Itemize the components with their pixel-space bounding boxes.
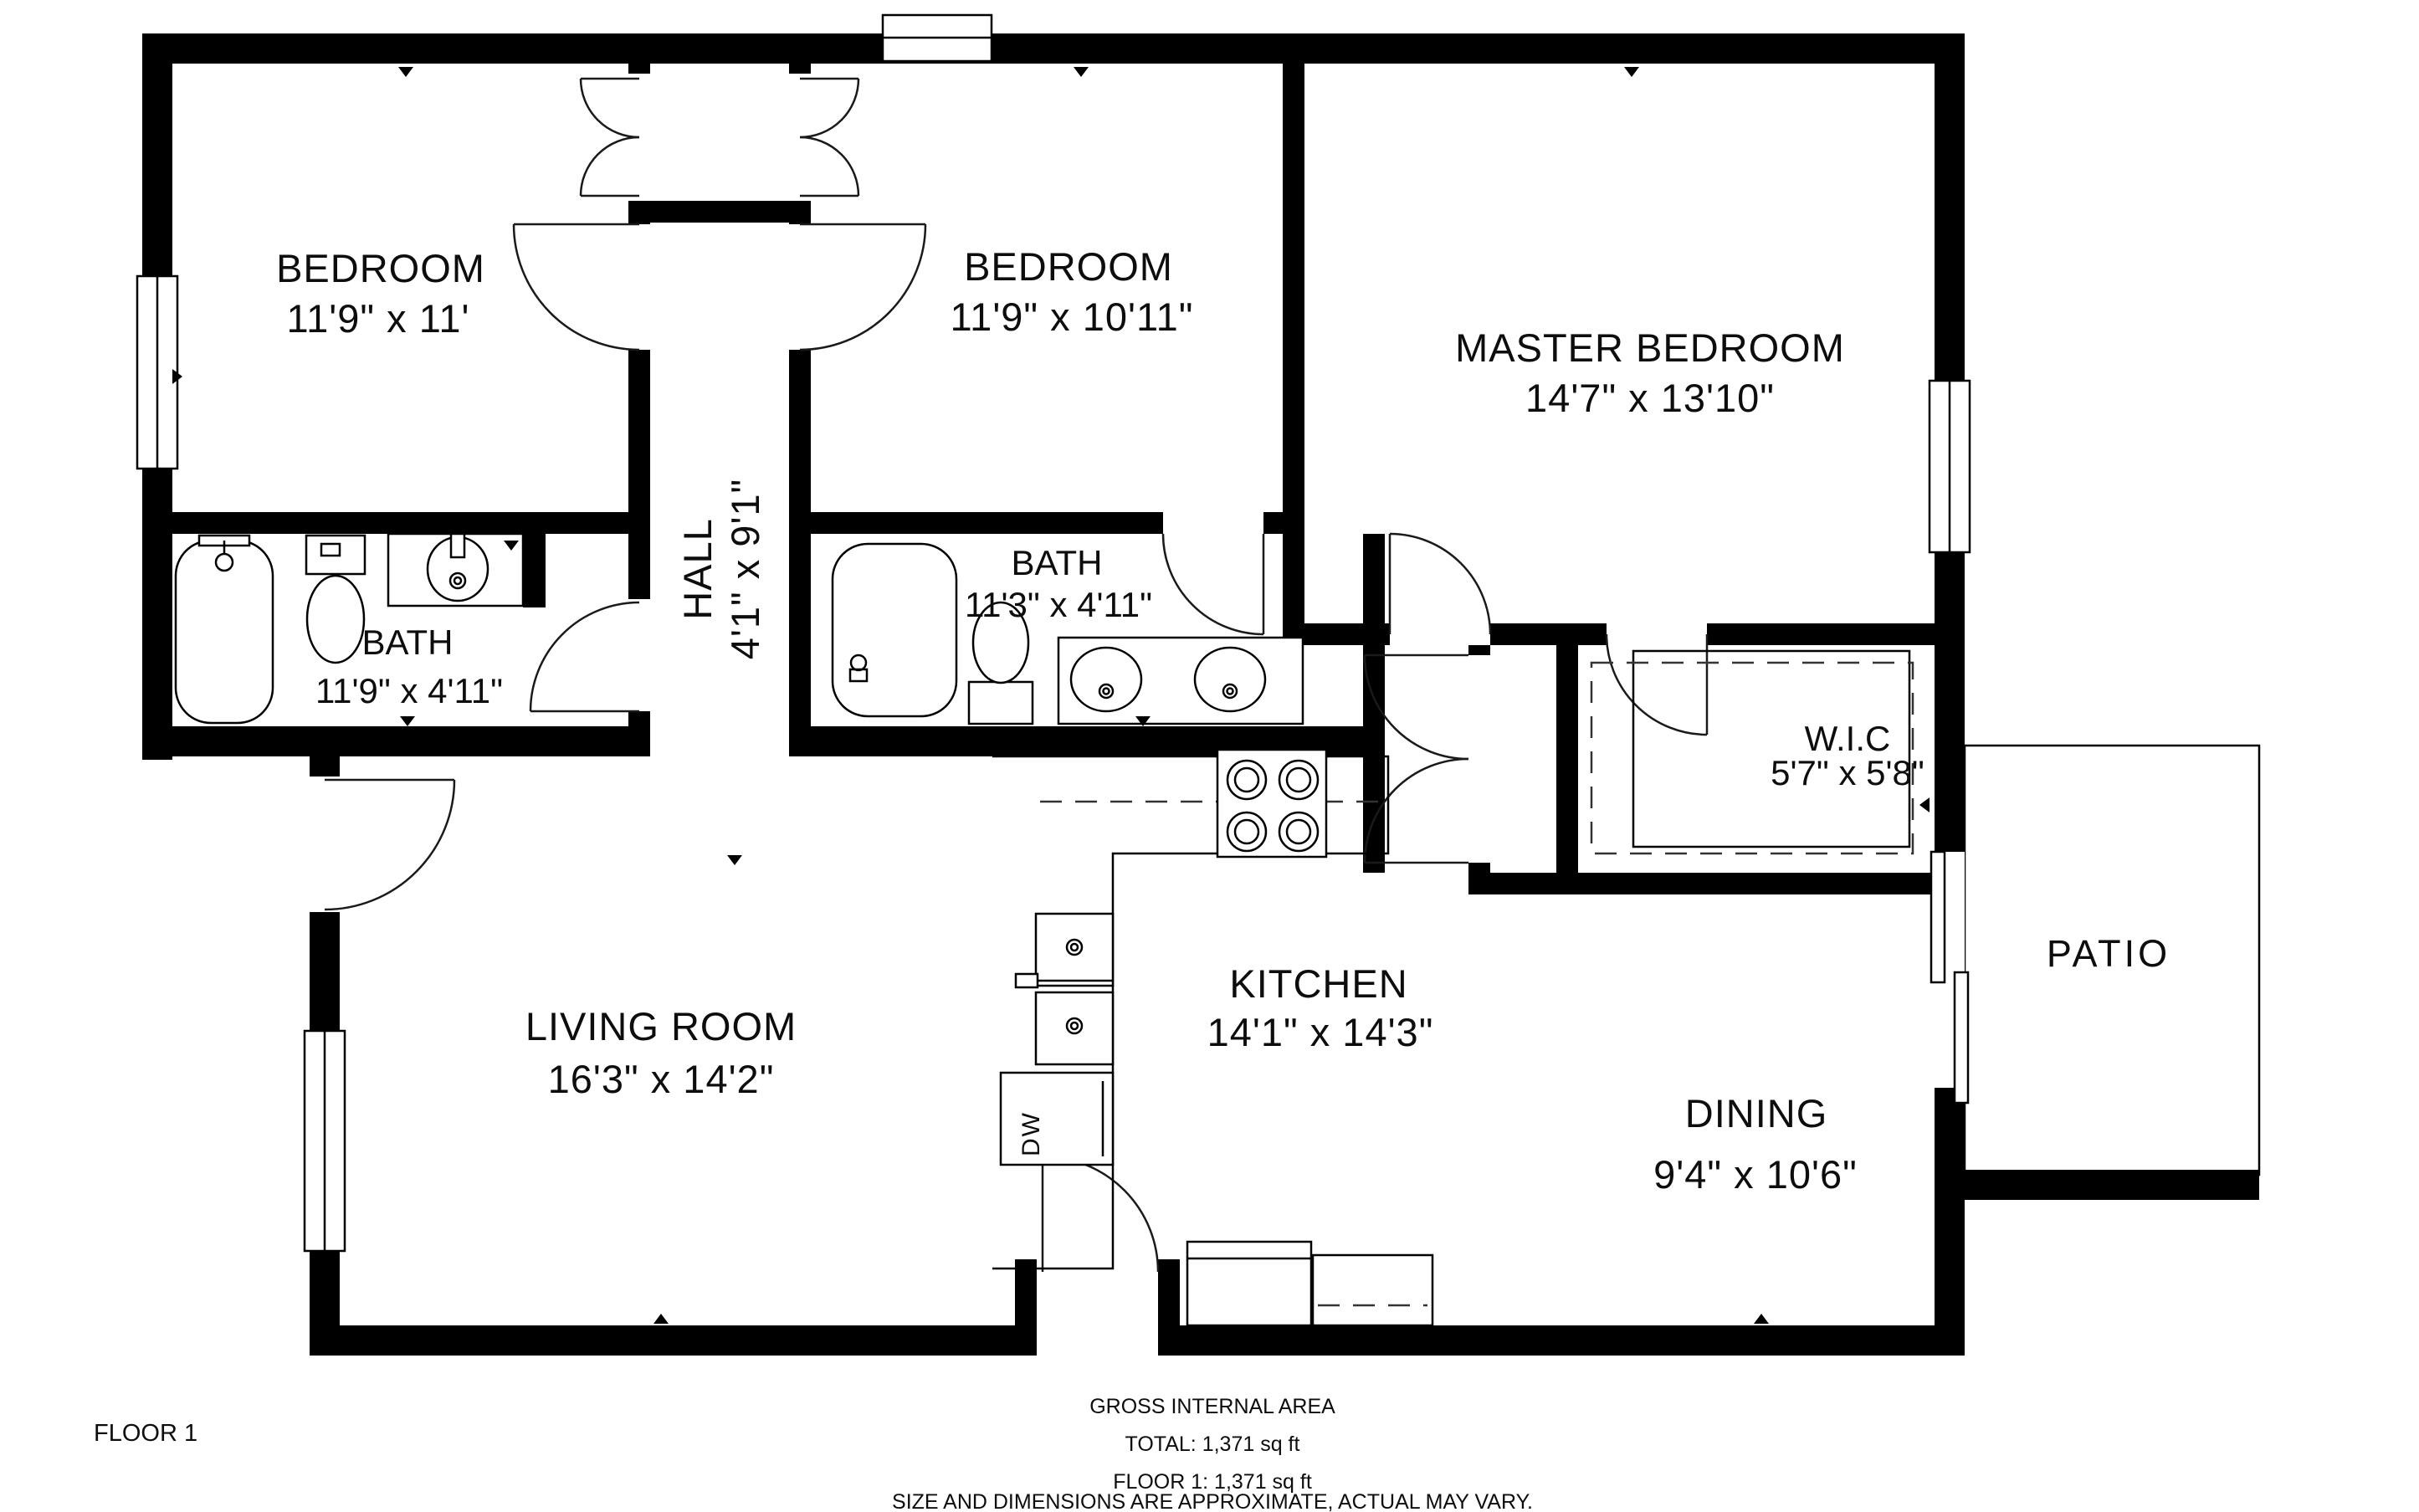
- stove-icon: [1217, 750, 1326, 857]
- floor-plan-page: DW BEDROOM 11'9" x 11' BEDROO: [0, 0, 2419, 1512]
- room-label-hall: HALL: [675, 518, 720, 620]
- room-label-dining: DINING: [1685, 1091, 1828, 1135]
- bathtub2-icon: [833, 544, 956, 716]
- floor-plan-svg: DW BEDROOM 11'9" x 11' BEDROO: [0, 0, 2419, 1512]
- room-dims-bath1: 11'9" x 4'11": [315, 671, 503, 710]
- room-label-kitchen: KITCHEN: [1229, 961, 1407, 1006]
- room-label-master: MASTER BEDROOM: [1455, 325, 1845, 370]
- room-dims-kitchen: 14'1" x 14'3": [1207, 1010, 1434, 1054]
- footer-total: TOTAL: 1,371 sq ft: [1125, 1433, 1300, 1456]
- room-dims-bath2: 11'3" x 4'11": [965, 585, 1152, 624]
- dryer-icon: [1313, 1255, 1432, 1325]
- room-label-bath2: BATH: [1012, 543, 1103, 582]
- room-dims-dining: 9'4" x 10'6": [1653, 1152, 1858, 1197]
- toilet-icon: [306, 536, 365, 663]
- washer-icon: [1187, 1242, 1311, 1325]
- room-label-bath1: BATH: [362, 623, 454, 662]
- room-label-wic: W.I.C: [1805, 719, 1891, 758]
- footer-gross-area: GROSS INTERNAL AREA: [1089, 1395, 1335, 1418]
- room-label-bedroom2: BEDROOM: [964, 244, 1173, 289]
- double-vanity-icon: [1058, 638, 1303, 724]
- room-label-patio: PATIO: [2047, 932, 2170, 975]
- bath1-sink-icon: [388, 534, 523, 606]
- window-master-icon: [1930, 381, 1970, 552]
- room-dims-bedroom2: 11'9" x 10'11": [951, 295, 1194, 339]
- room-label-bedroom1: BEDROOM: [276, 246, 485, 290]
- bathtub-icon: [176, 536, 273, 723]
- room-dims-hall: 4'1" x 9'1": [723, 479, 767, 660]
- floor-number-label: FLOOR 1: [94, 1420, 197, 1447]
- window-bedroom2-icon: [883, 15, 992, 61]
- window-living-icon: [305, 1031, 345, 1251]
- room-dims-living: 16'3" x 14'2": [548, 1057, 775, 1101]
- room-dims-bedroom1: 11'9" x 11': [287, 296, 470, 341]
- room-dims-master: 14'7" x 13'10": [1525, 376, 1775, 420]
- footer-disclaimer: SIZE AND DIMENSIONS ARE APPROXIMATE, ACT…: [892, 1490, 1533, 1512]
- laundry-appliances: [1187, 1242, 1432, 1325]
- room-label-living: LIVING ROOM: [525, 1004, 797, 1048]
- room-dims-wic: 5'7" x 5'8": [1771, 753, 1924, 792]
- dishwasher-label: DW: [1017, 1111, 1045, 1156]
- window-bedroom1-icon: [137, 276, 177, 469]
- dishwasher-icon: DW: [1001, 1073, 1113, 1165]
